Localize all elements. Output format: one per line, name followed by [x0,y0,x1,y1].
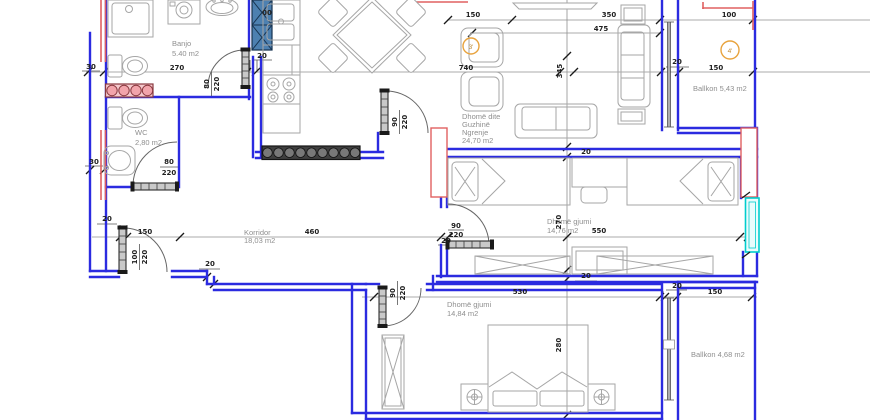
red-wall-bedroom1-east [741,128,757,197]
dim-entry-wall: 20 [102,215,112,223]
dim-korridor-length: 460 [305,228,320,236]
dim-balkon2-width: 150 [708,288,723,296]
floor-plan-drawing: 3' 4' Banjo 5.40 m2 WC 2,80 m2 Dhomë dit… [0,0,870,420]
svg-text:90: 90 [391,117,399,127]
svg-text:220: 220 [141,250,149,265]
sofa-horizontal-icon [515,104,597,138]
wardrobe-icon [382,335,404,409]
cyan-window-bedroom1 [742,192,759,258]
svg-text:14,84 m2: 14,84 m2 [447,309,478,318]
reference-label: 3' [469,44,474,51]
wc-sink-icon [104,146,135,175]
dim-korridor-step: 20 [205,260,215,268]
dresser-icon [572,247,627,274]
sofa-vertical-icon [618,5,650,124]
svg-text:220: 220 [401,115,409,130]
svg-text:345: 345 [556,64,564,79]
room-label-balkon2: Ballkon 4,68 m2 [691,350,745,359]
dim-entry-offset: 150 [138,228,153,236]
reference-circle-4: 4' [721,41,739,59]
svg-text:280: 280 [555,338,563,353]
washing-machine-icon [168,0,200,24]
dim-living-height: 345 [556,64,564,79]
dim-wall-offset-mid: 30 [89,158,99,166]
shaft-column [252,0,272,50]
armchair-icon [461,28,503,67]
dim-bedroom1-wall-n: 20 [581,148,591,156]
double-bed-icon [488,325,588,412]
toilet-banjo-icon [108,55,148,77]
red-wall-bedroom1-west [431,128,447,197]
svg-text:80: 80 [203,79,211,89]
armchair-icon [461,72,503,111]
wardrobe-icon [475,256,570,274]
nightstand-icon [461,384,488,410]
dining-set-icon [317,0,426,74]
room-label-bedroom2: Dhomë gjumi [447,300,492,309]
dim-bedroom1-door-w: 90 [451,222,461,230]
red-wall-segments [101,0,757,200]
svg-text:270: 270 [555,215,563,230]
nightstand-icon [588,384,615,410]
wardrobe-icon [597,256,713,274]
svg-text:220: 220 [399,286,407,301]
dim-bedroom1-height: 270 [555,215,563,230]
dim-bedroom2-height: 280 [555,338,563,353]
room-label-wc: WC [135,128,148,137]
svg-text:90: 90 [389,288,397,298]
side-table-icon [618,109,645,124]
svg-text:220: 220 [213,77,221,92]
dim-wc-door-h: 220 [162,169,177,177]
dimension-ticks [84,16,757,419]
dim-balkon1-wall: 20 [672,58,682,66]
dim-living-inner: 475 [594,25,609,33]
dim-kitchen-door: 90 220 [391,110,409,134]
dim-tv-wall: 150 [466,11,481,19]
dim-bedroom1-wall-s: 20 [581,272,591,280]
window-bedroom2-balkon2 [664,298,675,400]
dim-fragment: 00 [262,9,272,17]
window-living-balkon1 [664,22,674,127]
dim-bedroom1-door-wall: 20 [441,237,451,245]
dim-bedroom1-width: 550 [592,227,607,235]
svg-text:18,03 m2: 18,03 m2 [244,236,275,245]
dim-balkon1-top: 100 [722,11,737,19]
shower-icon [108,0,153,37]
svg-text:100: 100 [131,250,139,265]
dim-entry-door: 100 220 [131,244,149,270]
dim-shaft: 20 [257,52,267,60]
dim-banjo-door: 80 220 [203,72,221,96]
dim-living-width: 740 [459,64,474,72]
walls [90,0,757,420]
dim-balkon2-wall: 20 [672,282,682,290]
single-bed-icon [627,158,738,205]
svg-text:5.40 m2: 5.40 m2 [172,49,199,58]
room-label-bedroom1: Dhomë gjumi [547,217,592,226]
bathroom-sink-icon [206,0,238,16]
dim-sofa-wall: 350 [602,11,617,19]
single-bed-icon [448,158,570,205]
cooktop-icon [267,78,295,102]
floor-plan-canvas: 3' 4' Banjo 5.40 m2 WC 2,80 m2 Dhomë dit… [0,0,870,420]
svg-text:2,80 m2: 2,80 m2 [135,138,162,147]
reference-circle-3: 3' [463,38,479,54]
radiator-dark-icon [262,146,360,160]
tv-shelf-icon [513,3,597,9]
room-label-banjo: Banjo [172,39,191,48]
dim-bedroom2-width: 530 [513,288,528,296]
room-label-balkon1: Ballkon 5,43 m2 [693,84,747,93]
chair-icon [581,187,607,203]
dim-wc-door-w: 80 [164,158,174,166]
reference-label: 4' [728,48,733,55]
dim-banjo-width: 270 [170,64,185,72]
dim-bedroom1-door-h: 220 [449,231,464,239]
svg-text:24,70 m2: 24,70 m2 [462,136,493,145]
dim-bedroom2-door: 90 220 [389,281,407,305]
dim-wall-offset-top: 30 [86,63,96,71]
toilet-wc-icon [108,107,148,129]
dim-balkon1-width: 150 [709,64,724,72]
radiator-pink-icon [106,84,154,97]
desk-icon [572,158,627,203]
